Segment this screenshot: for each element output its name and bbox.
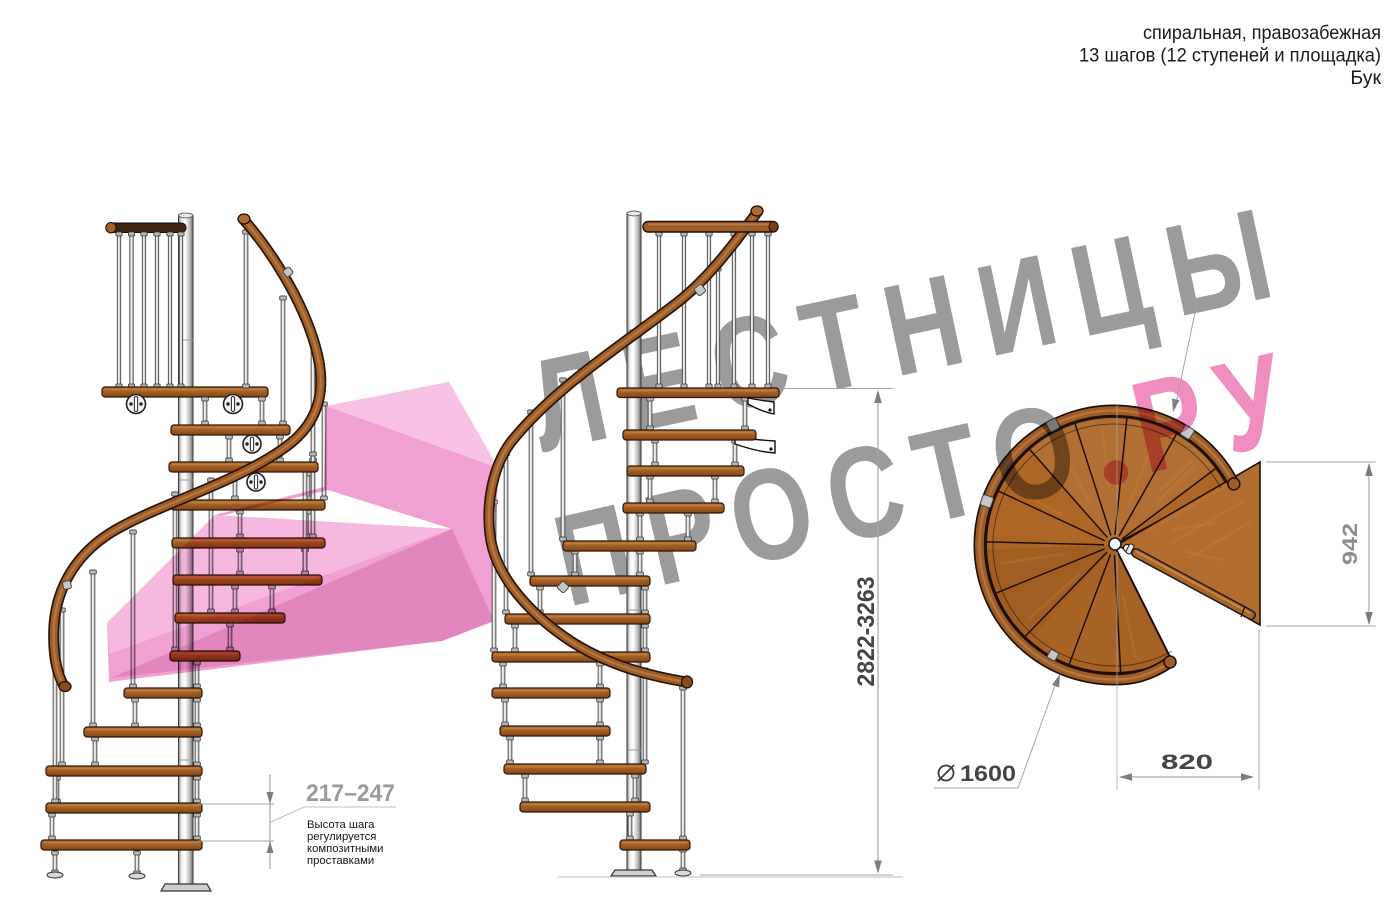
svg-text:1600: 1600 — [960, 761, 1016, 786]
svg-text:регулируется: регулируется — [307, 831, 376, 843]
svg-text:композитными: композитными — [307, 843, 384, 855]
svg-text:спиральная, правозабежная: спиральная, правозабежная — [1143, 22, 1381, 44]
svg-text:Бук: Бук — [1350, 67, 1381, 89]
svg-text:проставками: проставками — [307, 855, 374, 867]
svg-text:13 шагов (12 ступеней и площад: 13 шагов (12 ступеней и площадка) — [1079, 45, 1381, 67]
svg-text:820: 820 — [1161, 751, 1213, 774]
svg-text:942: 942 — [1339, 523, 1362, 565]
svg-text:Высота шага: Высота шага — [307, 819, 375, 831]
svg-text:217–247: 217–247 — [306, 780, 395, 807]
svg-text:2822-3263: 2822-3263 — [853, 577, 880, 687]
